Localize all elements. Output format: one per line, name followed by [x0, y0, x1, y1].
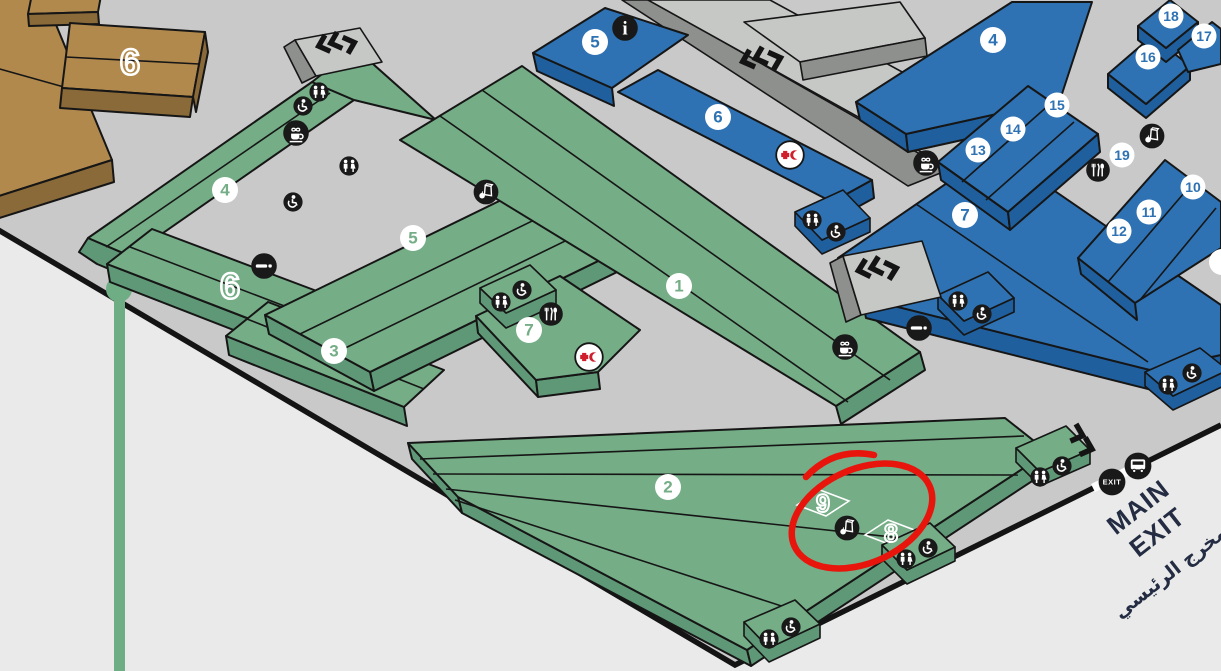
wheelchair-icon	[781, 617, 800, 636]
map-canvas: i 4 5 3 1 7 2 6 9 8 6 5 6 4 7 13 14 15 1…	[0, 0, 1221, 671]
hall-label-green-3: 3	[321, 338, 347, 364]
svg-text:4: 4	[220, 181, 230, 200]
hall-label-green-6: 6	[220, 266, 240, 307]
restaurant-icon	[1086, 158, 1110, 182]
food-bag-icon	[835, 516, 860, 541]
hall-label-blue-19: 19	[1110, 143, 1135, 168]
svg-text:13: 13	[970, 142, 986, 158]
hall-label-blue-14: 14	[1001, 117, 1026, 142]
food-bag-icon	[474, 180, 499, 205]
venue-map: i 4 5 3 1 7 2 6 9 8 6 5 6 4 7 13 14 15 1…	[0, 0, 1221, 671]
toilets-icon	[309, 82, 328, 101]
wheelchair-icon	[918, 538, 937, 557]
first-aid-icon	[575, 343, 603, 371]
wheelchair-icon	[972, 304, 991, 323]
hall-label-blue-6: 6	[705, 104, 731, 130]
svg-text:4: 4	[988, 31, 998, 50]
toilets-icon	[802, 210, 821, 229]
svg-text:EXIT: EXIT	[1103, 478, 1122, 487]
wheelchair-icon	[1052, 456, 1071, 475]
hall-label-blue-13: 13	[966, 138, 991, 163]
svg-text:7: 7	[524, 321, 533, 340]
svg-text:1: 1	[674, 277, 683, 296]
hall-label-blue-10: 10	[1181, 175, 1206, 200]
hall-label-green-4: 4	[212, 177, 238, 203]
cafe-icon	[913, 150, 939, 176]
svg-text:12: 12	[1111, 223, 1127, 239]
bus-icon	[1125, 453, 1152, 480]
toilets-icon	[759, 629, 778, 648]
hall-label-green-5: 5	[400, 225, 426, 251]
hall-label-green-8: 8	[884, 520, 898, 548]
smoking-icon	[906, 315, 932, 341]
svg-text:2: 2	[663, 478, 672, 497]
svg-text:11: 11	[1142, 204, 1157, 220]
wheelchair-icon	[283, 192, 302, 211]
hall-label-blue-7: 7	[952, 202, 978, 228]
cafe-icon	[832, 334, 858, 360]
hall-label-green-2: 2	[655, 474, 681, 500]
wheelchair-icon	[293, 96, 312, 115]
svg-text:3: 3	[329, 342, 338, 361]
svg-text:7: 7	[960, 206, 969, 225]
svg-text:15: 15	[1049, 97, 1065, 113]
toilets-icon	[491, 292, 510, 311]
svg-text:16: 16	[1140, 49, 1156, 65]
wheelchair-icon	[1182, 363, 1201, 382]
svg-text:19: 19	[1114, 147, 1130, 163]
hall-label-brown-6: 6	[120, 42, 140, 83]
hall-label-blue-15: 15	[1045, 93, 1070, 118]
svg-text:6: 6	[713, 108, 722, 127]
svg-text:10: 10	[1185, 179, 1201, 195]
svg-text:i: i	[622, 19, 627, 40]
hall-label-blue-12: 12	[1107, 219, 1132, 244]
food-bag-icon	[1140, 124, 1165, 149]
hall-label-blue-17: 17	[1192, 24, 1217, 49]
exit-icon: EXIT	[1099, 469, 1126, 496]
toilets-icon	[1158, 375, 1177, 394]
svg-text:18: 18	[1163, 8, 1179, 24]
hall-label-blue-4: 4	[980, 27, 1006, 53]
first-aid-icon	[776, 141, 804, 169]
hall-label-blue-11: 11	[1137, 200, 1162, 225]
restaurant-icon	[539, 302, 563, 326]
svg-text:5: 5	[590, 33, 599, 52]
svg-text:14: 14	[1005, 121, 1021, 137]
wheelchair-icon	[512, 280, 531, 299]
cafe-icon	[283, 120, 309, 146]
toilets-icon	[339, 156, 358, 175]
hall-label-blue-5: 5	[582, 29, 608, 55]
hall-label-green-1: 1	[666, 273, 692, 299]
svg-text:17: 17	[1196, 28, 1212, 44]
toilets-icon	[948, 291, 967, 310]
hall-label-green-7: 7	[516, 317, 542, 343]
hall-label-blue-16: 16	[1136, 45, 1161, 70]
svg-text:5: 5	[408, 229, 417, 248]
hall-label-green-9: 9	[816, 490, 830, 518]
smoking-icon	[251, 253, 277, 279]
toilets-icon	[1030, 467, 1049, 486]
wheelchair-icon	[826, 222, 845, 241]
hall-label-blue-18: 18	[1159, 4, 1184, 29]
info-icon: i	[612, 15, 638, 41]
